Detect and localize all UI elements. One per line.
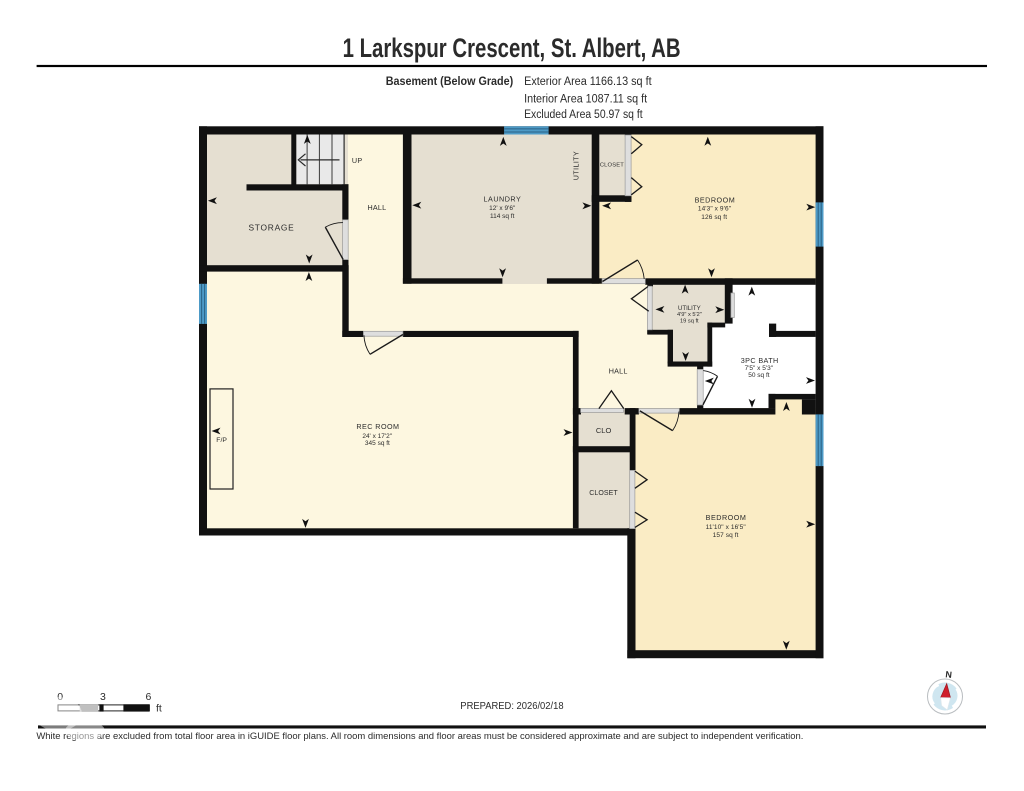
svg-text:6: 6: [145, 691, 151, 703]
svg-text:126 sq ft: 126 sq ft: [701, 214, 727, 221]
svg-text:UTILITY: UTILITY: [573, 151, 580, 180]
svg-text:Exterior Area 1166.13 sq ft: Exterior Area 1166.13 sq ft: [524, 76, 652, 88]
svg-text:BEDROOM: BEDROOM: [695, 196, 736, 205]
svg-text:Excluded Area 50.97 sq ft: Excluded Area 50.97 sq ft: [524, 109, 643, 121]
svg-text:N: N: [945, 669, 953, 680]
svg-text:19 sq ft: 19 sq ft: [680, 318, 699, 324]
svg-text:CLOSET: CLOSET: [600, 162, 624, 168]
svg-text:345 sq ft: 345 sq ft: [365, 440, 390, 447]
svg-text:11'10" x 16'5": 11'10" x 16'5": [706, 524, 747, 531]
svg-text:157 sq ft: 157 sq ft: [713, 532, 739, 539]
svg-text:14'3" x 9'6": 14'3" x 9'6": [698, 206, 732, 213]
svg-text:12' x 9'6": 12' x 9'6": [489, 205, 516, 212]
svg-text:114 sq ft: 114 sq ft: [490, 213, 515, 220]
svg-text:STORAGE: STORAGE: [248, 223, 294, 233]
svg-text:White regions are excluded fro: White regions are excluded from total fl…: [36, 730, 803, 741]
svg-text:3PC BATH: 3PC BATH: [741, 356, 779, 365]
svg-text:LAUNDRY: LAUNDRY: [484, 194, 522, 203]
svg-text:4'9" x 5'2": 4'9" x 5'2": [677, 312, 702, 318]
svg-text:7'5" x 5'3": 7'5" x 5'3": [745, 365, 774, 372]
svg-text:BEDROOM: BEDROOM: [706, 513, 747, 522]
svg-text:F/P: F/P: [216, 437, 227, 444]
svg-text:UTILITY: UTILITY: [678, 305, 701, 312]
svg-text:CLOSET: CLOSET: [589, 490, 618, 497]
svg-text:REC ROOM: REC ROOM: [356, 422, 399, 431]
svg-text:HALL: HALL: [609, 366, 628, 375]
svg-text:PREPARED: 2026/02/18: PREPARED: 2026/02/18: [460, 701, 564, 712]
svg-text:UP: UP: [352, 156, 363, 165]
svg-text:Interior Area 1087.11 sq ft: Interior Area 1087.11 sq ft: [524, 93, 648, 105]
svg-text:ft: ft: [156, 704, 162, 715]
svg-text:3: 3: [100, 691, 106, 703]
svg-text:HALL: HALL: [368, 203, 387, 212]
svg-text:50 sq ft: 50 sq ft: [748, 372, 770, 379]
svg-text:Basement (Below Grade): Basement (Below Grade): [386, 76, 514, 88]
svg-text:1 Larkspur Crescent, St. Alber: 1 Larkspur Crescent, St. Albert, AB: [343, 33, 681, 63]
svg-text:CLO: CLO: [596, 426, 612, 435]
